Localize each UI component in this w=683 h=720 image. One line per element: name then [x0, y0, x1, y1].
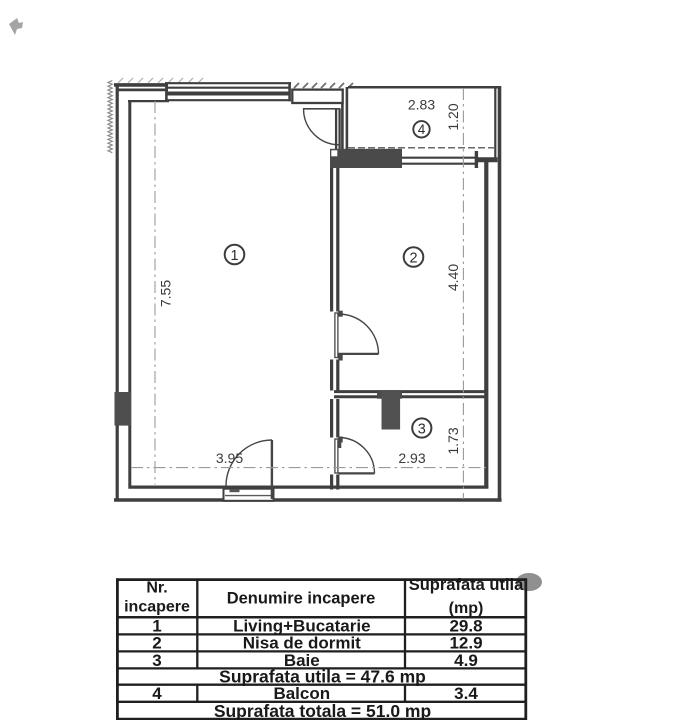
- svg-text:3.95: 3.95: [216, 450, 243, 466]
- svg-text:29.8: 29.8: [449, 616, 482, 635]
- svg-text:Nisa de dormit: Nisa de dormit: [243, 634, 361, 653]
- svg-text:3: 3: [418, 421, 426, 437]
- svg-text:Suprafata utila: Suprafata utila: [409, 576, 524, 594]
- svg-text:2.83: 2.83: [408, 97, 435, 113]
- svg-text:Suprafata totala = 51.0 mp: Suprafata totala = 51.0 mp: [214, 701, 431, 720]
- svg-text:4: 4: [152, 684, 162, 703]
- svg-text:1: 1: [230, 248, 238, 264]
- svg-text:Living+Bucatarie: Living+Bucatarie: [233, 616, 370, 635]
- svg-text:4: 4: [418, 122, 426, 137]
- svg-text:12.9: 12.9: [449, 634, 482, 653]
- svg-text:2: 2: [409, 250, 417, 266]
- svg-text:3.4: 3.4: [454, 684, 478, 703]
- svg-text:3: 3: [152, 651, 161, 670]
- svg-text:4.40: 4.40: [445, 264, 461, 291]
- svg-text:incapere: incapere: [124, 599, 190, 616]
- svg-text:Nr.: Nr.: [146, 580, 167, 597]
- svg-text:4.9: 4.9: [454, 651, 478, 670]
- svg-text:2.93: 2.93: [398, 450, 425, 466]
- svg-text:2: 2: [152, 634, 161, 653]
- svg-text:Denumire incapere: Denumire incapere: [227, 590, 376, 608]
- svg-text:1.20: 1.20: [445, 103, 461, 130]
- svg-text:7.55: 7.55: [158, 280, 174, 307]
- svg-text:(mp): (mp): [449, 600, 484, 617]
- svg-text:1.73: 1.73: [445, 427, 461, 454]
- svg-text:1: 1: [152, 616, 161, 635]
